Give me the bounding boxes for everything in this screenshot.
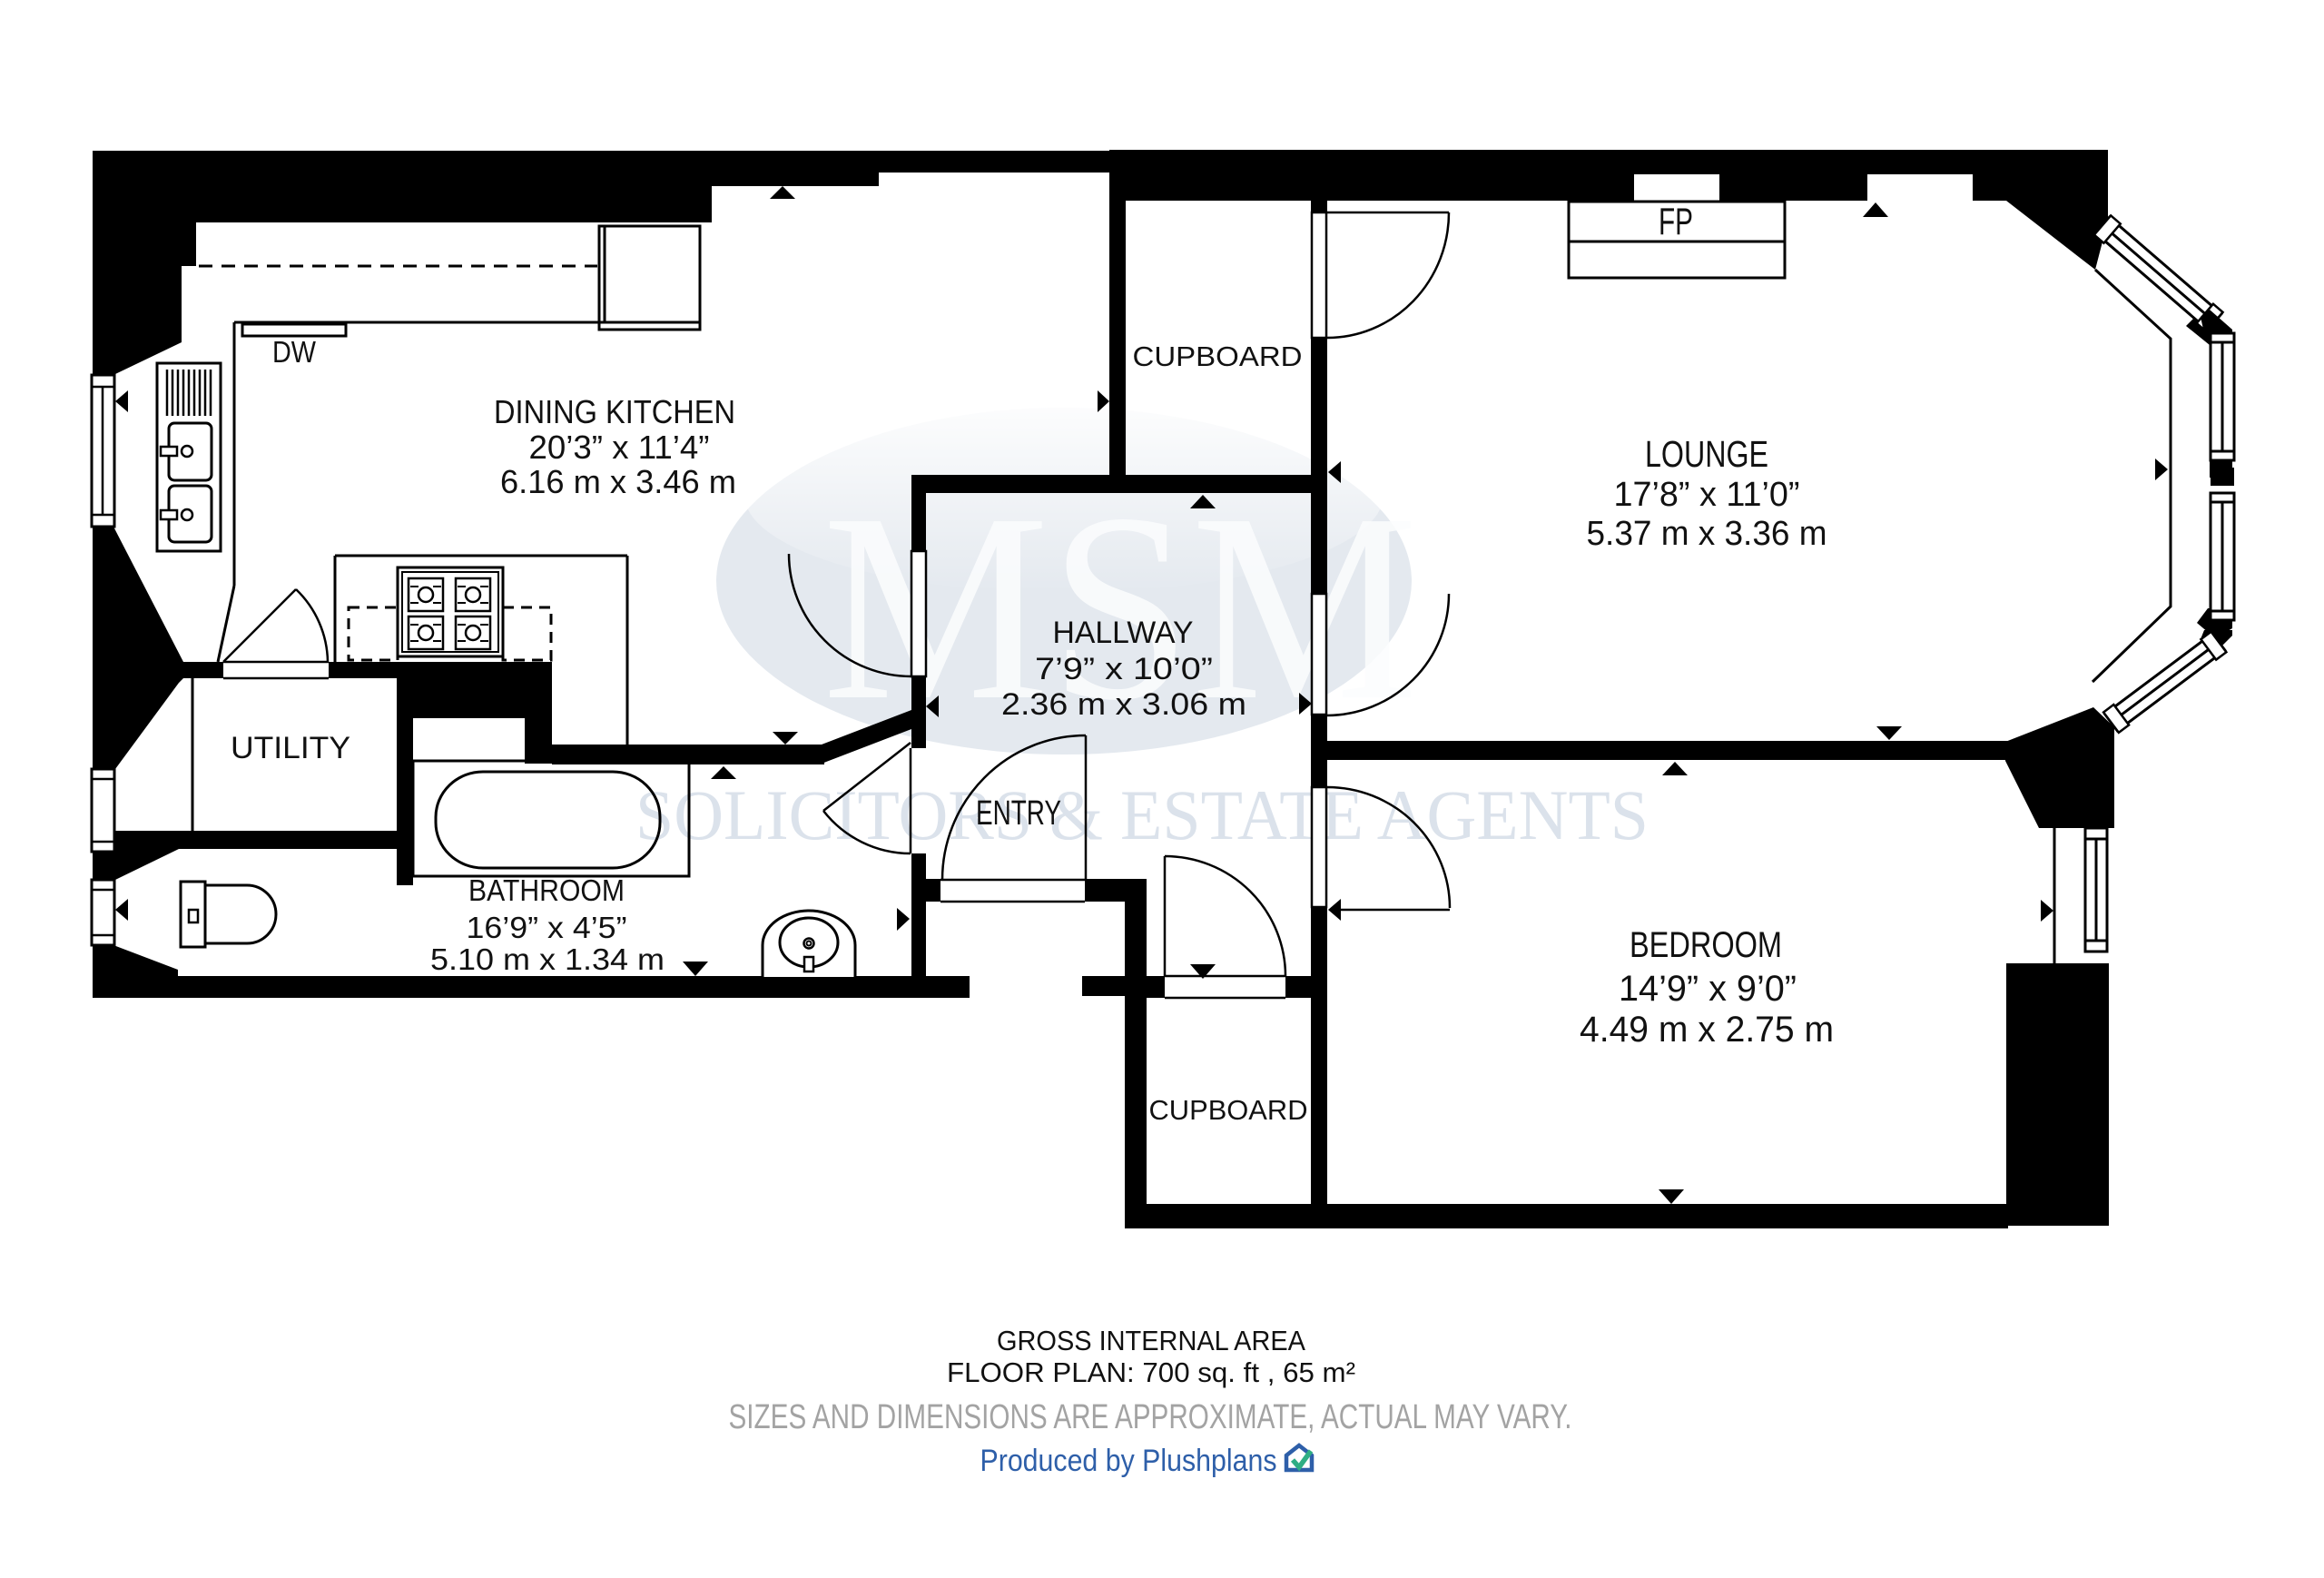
- svg-text:GROSS INTERNAL AREA: GROSS INTERNAL AREA: [997, 1325, 1305, 1356]
- svg-text:DW: DW: [272, 335, 317, 369]
- svg-text:6.16 m x 3.46 m: 6.16 m x 3.46 m: [500, 463, 736, 500]
- svg-text:BEDROOM: BEDROOM: [1630, 925, 1782, 965]
- svg-text:DINING KITCHEN: DINING KITCHEN: [494, 393, 735, 430]
- svg-text:FP: FP: [1659, 200, 1693, 242]
- svg-text:ENTRY: ENTRY: [976, 794, 1061, 833]
- svg-text:LOUNGE: LOUNGE: [1645, 433, 1768, 475]
- svg-text:4.49 m x 2.75 m: 4.49 m x 2.75 m: [1580, 1010, 1834, 1050]
- svg-text:HALLWAY: HALLWAY: [1053, 616, 1194, 650]
- svg-text:14’9” x 9’0”: 14’9” x 9’0”: [1619, 969, 1797, 1009]
- svg-text:5.37 m x 3.36 m: 5.37 m x 3.36 m: [1587, 515, 1827, 553]
- svg-text:5.10 m x 1.34 m: 5.10 m x 1.34 m: [430, 942, 665, 976]
- svg-text:SOLICITORS & ESTATE AGENTS: SOLICITORS & ESTATE AGENTS: [635, 775, 1649, 854]
- svg-text:UTILITY: UTILITY: [231, 731, 350, 765]
- svg-text:SIZES AND DIMENSIONS ARE APPRO: SIZES AND DIMENSIONS ARE APPROXIMATE, AC…: [729, 1398, 1572, 1436]
- svg-text:Produced by Plushplans: Produced by Plushplans: [980, 1444, 1277, 1478]
- svg-text:2.36 m x 3.06 m: 2.36 m x 3.06 m: [1001, 687, 1246, 722]
- svg-text:7’9” x 10’0”: 7’9” x 10’0”: [1035, 652, 1213, 686]
- svg-text:17’8” x 11’0”: 17’8” x 11’0”: [1614, 476, 1800, 514]
- svg-text:20’3” x 11’4”: 20’3” x 11’4”: [529, 429, 710, 466]
- svg-text:CUPBOARD: CUPBOARD: [1133, 340, 1303, 372]
- svg-text:BATHROOM: BATHROOM: [468, 873, 625, 907]
- svg-text:CUPBOARD: CUPBOARD: [1149, 1094, 1308, 1126]
- svg-text:FLOOR PLAN: 700 sq. ft , 65 m²: FLOOR PLAN: 700 sq. ft , 65 m²: [947, 1356, 1355, 1388]
- svg-text:16’9” x 4’5”: 16’9” x 4’5”: [467, 911, 627, 944]
